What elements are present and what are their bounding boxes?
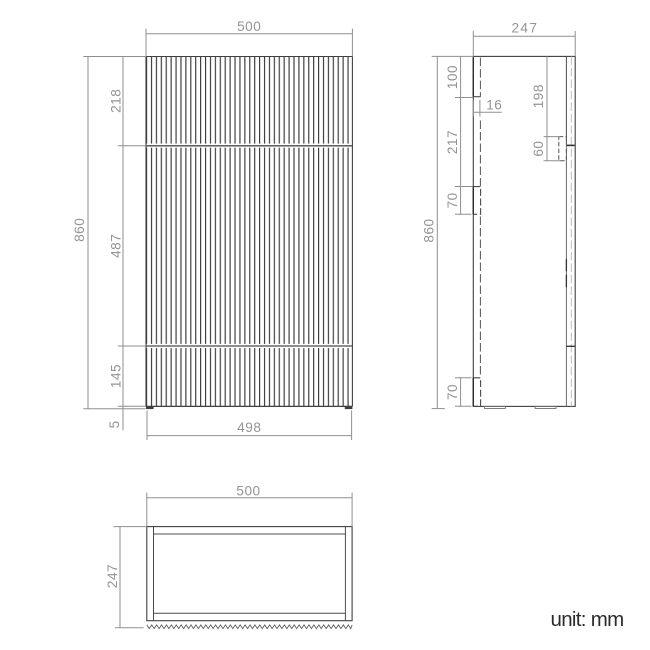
svg-text:70: 70 (445, 384, 460, 400)
svg-text:217: 217 (445, 130, 460, 154)
svg-text:145: 145 (108, 364, 123, 388)
svg-text:5: 5 (107, 420, 122, 428)
svg-text:16: 16 (486, 97, 502, 112)
svg-text:100: 100 (445, 65, 460, 89)
svg-text:198: 198 (531, 84, 546, 108)
svg-text:70: 70 (445, 192, 460, 208)
svg-text:860: 860 (72, 218, 87, 242)
svg-text:498: 498 (237, 420, 261, 435)
svg-text:unit: mm: unit: mm (551, 608, 624, 631)
svg-text:500: 500 (237, 19, 261, 34)
svg-text:218: 218 (108, 89, 123, 113)
svg-text:247: 247 (105, 564, 120, 588)
svg-text:487: 487 (108, 234, 123, 258)
svg-text:60: 60 (531, 141, 546, 157)
svg-text:500: 500 (236, 483, 260, 498)
svg-text:860: 860 (421, 218, 436, 242)
svg-text:247: 247 (511, 21, 538, 36)
